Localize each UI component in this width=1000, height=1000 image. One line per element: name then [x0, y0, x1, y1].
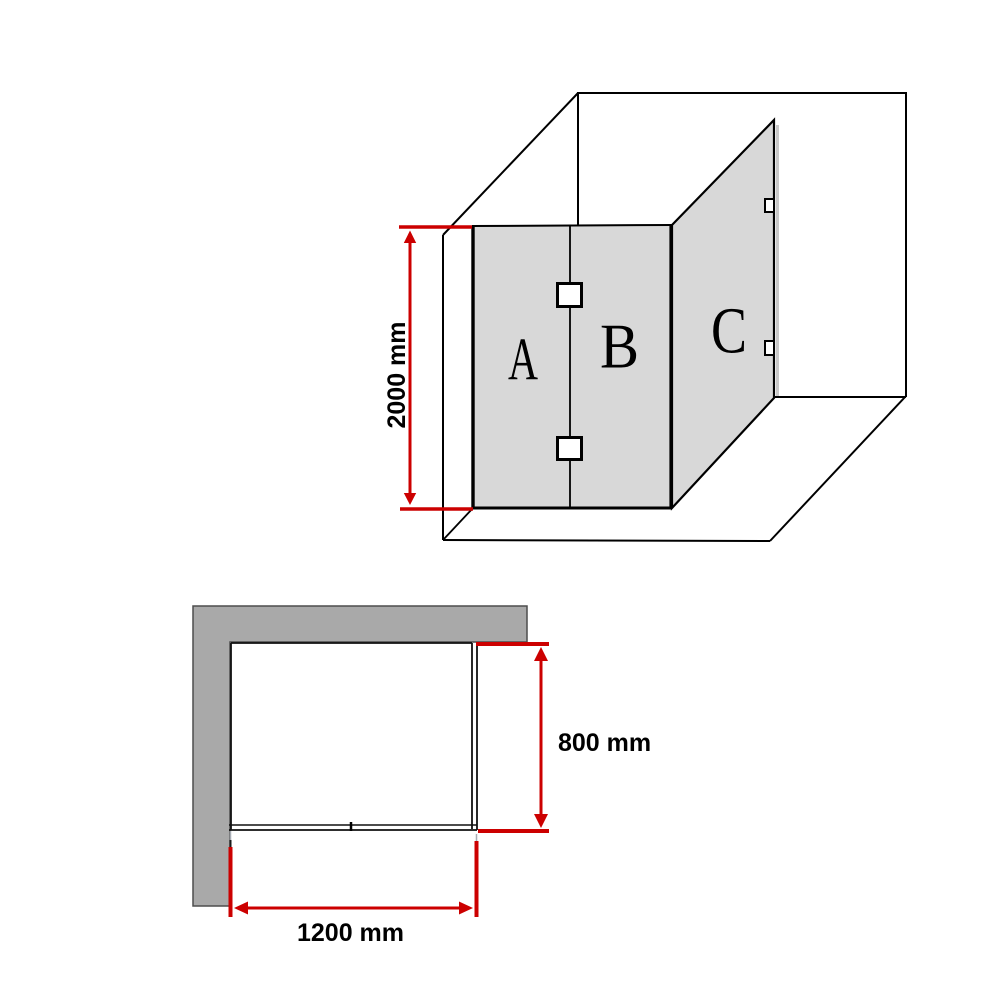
svg-text:800 mm: 800 mm	[558, 729, 651, 757]
svg-text:B: B	[600, 311, 639, 382]
svg-text:A: A	[508, 327, 538, 393]
svg-text:1200 mm: 1200 mm	[297, 919, 404, 947]
svg-text:C: C	[711, 295, 747, 368]
svg-text:2000 mm: 2000 mm	[383, 321, 411, 428]
